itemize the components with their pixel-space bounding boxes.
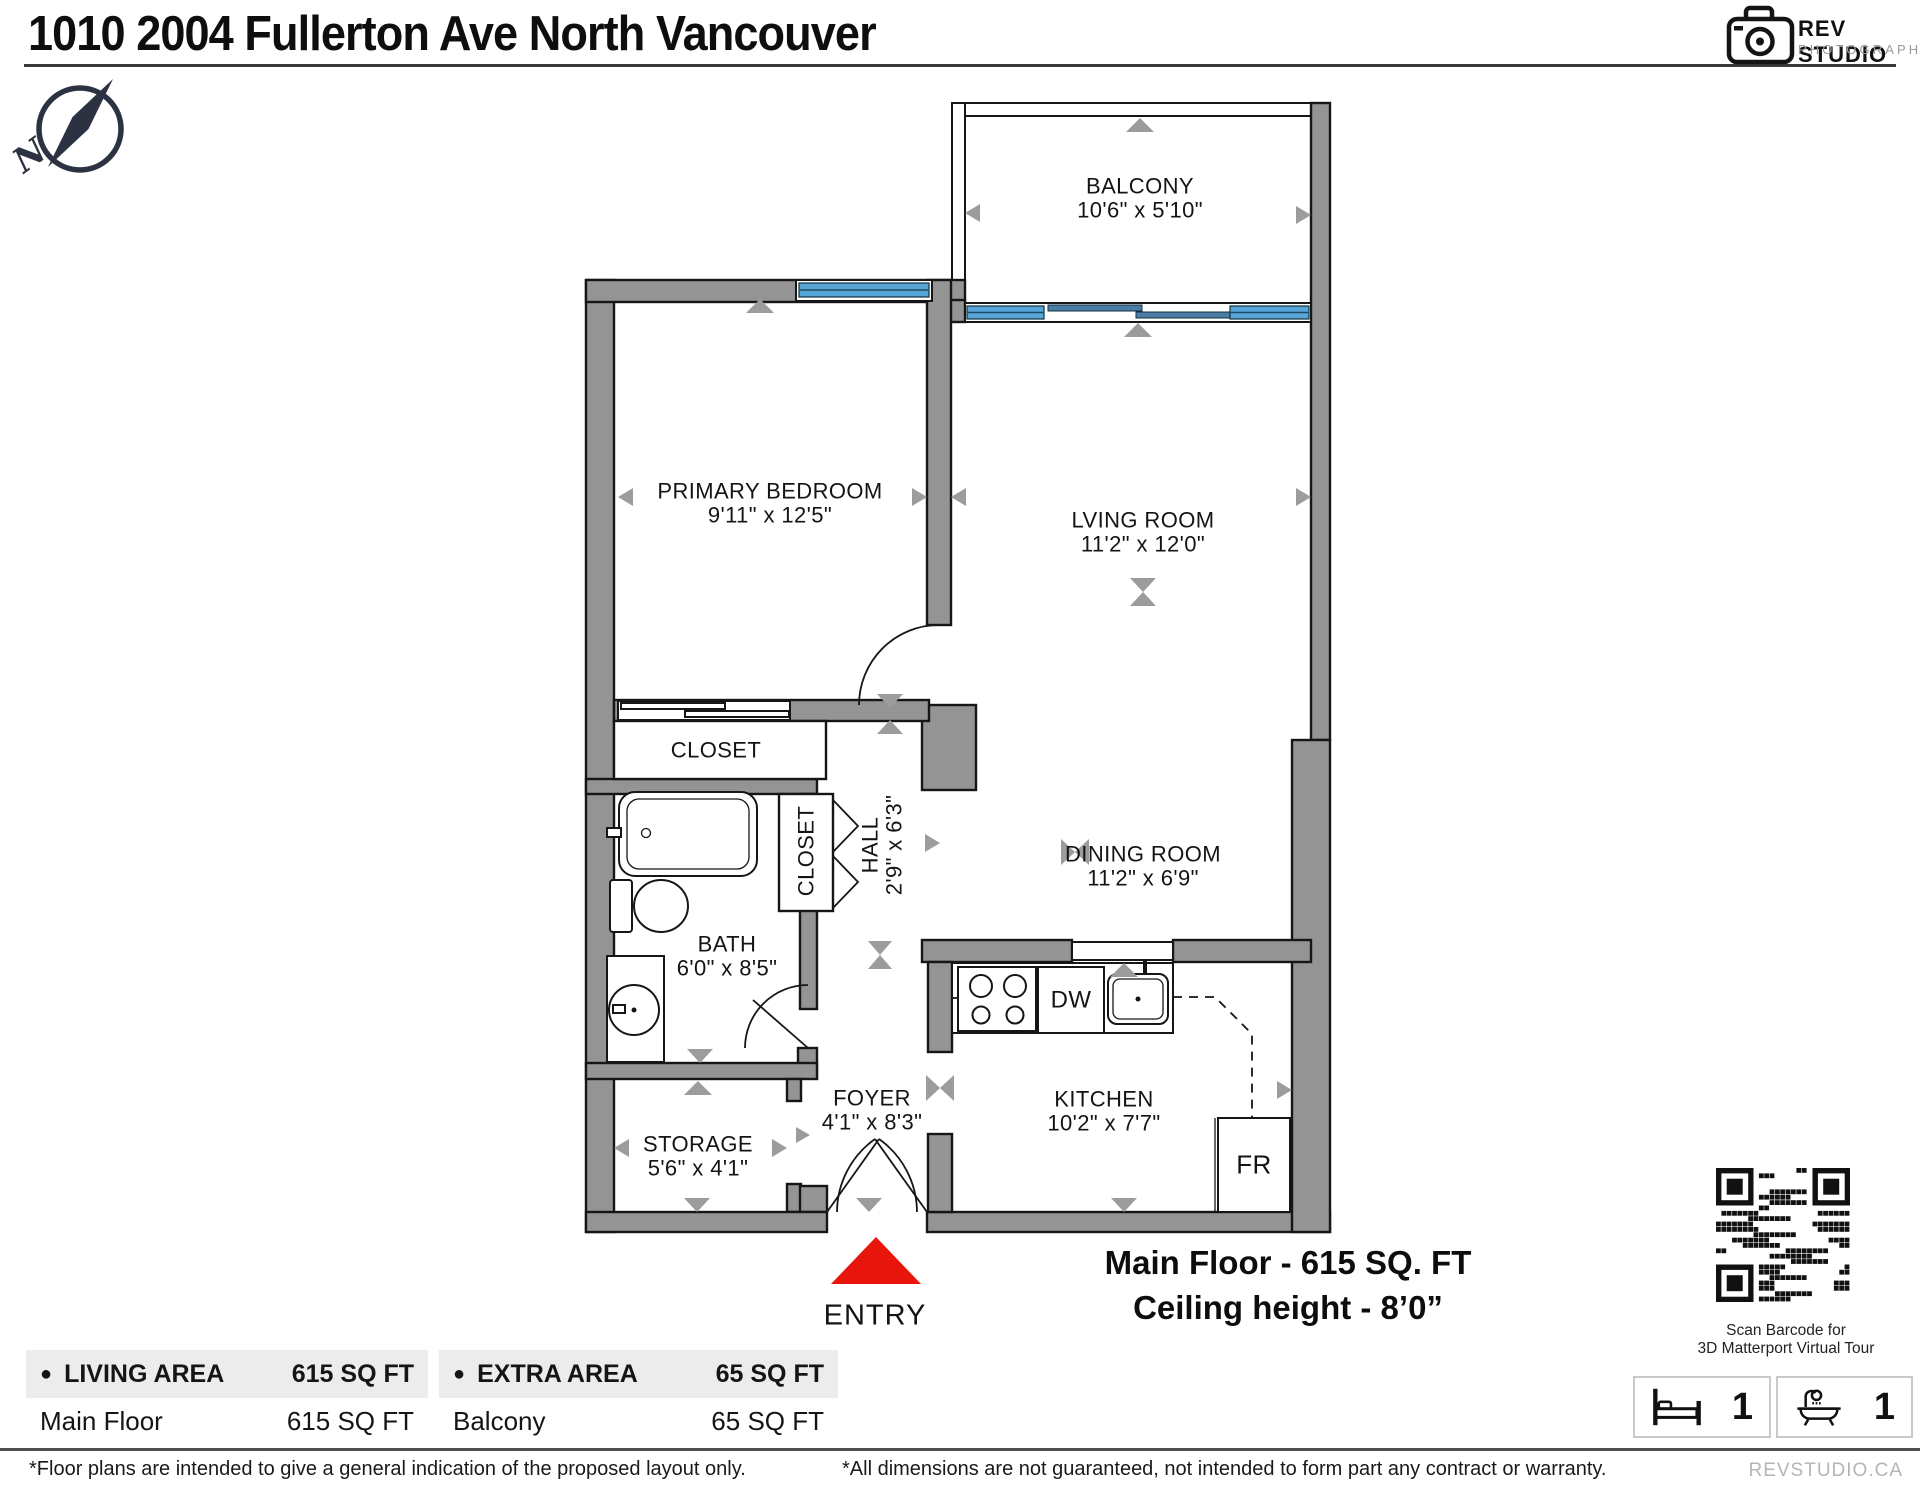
entry-arrow (831, 1237, 921, 1284)
compass-icon (39, 79, 121, 170)
room-dims: 11'2" x 6'9" (1065, 866, 1221, 890)
room-label-bedroom-closet: CLOSET (671, 738, 761, 762)
closet-sliding-door (618, 701, 790, 720)
bath-door (745, 985, 808, 1048)
room-label-hall-closet: CLOSET (794, 806, 818, 896)
bathroom-count: 1 (1874, 1386, 1895, 1429)
fridge-label: FR (1236, 1153, 1271, 1177)
bullet-icon: ● (40, 1363, 52, 1386)
room-dims: 6'0" x 8'5" (677, 956, 778, 980)
bifold-doors (833, 800, 858, 908)
room-name: PRIMARY BEDROOM (657, 480, 882, 504)
bathtub (607, 792, 757, 876)
room-label-living-room: LVING ROOM 11'2" x 12'0" (1072, 509, 1215, 556)
washer (607, 956, 664, 1062)
room-dims: 10'2" x 7'7" (1047, 1111, 1160, 1135)
floorplan-page: 1010 2004 Fullerton Ave North Vancouver … (0, 0, 1920, 1486)
room-dims: 9'11" x 12'5" (657, 503, 882, 527)
entry-label: ENTRY (824, 1304, 927, 1328)
camera-icon (1729, 8, 1792, 62)
bed-icon (1651, 1387, 1703, 1427)
floor-area-line: Main Floor - 615 SQ. FT (1063, 1240, 1513, 1285)
legend-living-title: LIVING AREA (64, 1360, 224, 1389)
legend-living-row-value: 615 SQ FT (287, 1406, 414, 1437)
room-label-foyer: FOYER 4'1" x 8'3" (822, 1087, 923, 1134)
room-dims: 4'1" x 8'3" (822, 1110, 923, 1134)
sliding-door (1048, 305, 1142, 311)
legend-extra-title: EXTRA AREA (477, 1360, 638, 1389)
room-name: CLOSET (671, 738, 761, 762)
legend-extra-row-value: 65 SQ FT (711, 1406, 824, 1437)
legend-extra-total: 65 SQ FT (716, 1360, 824, 1389)
room-dims: 11'2" x 12'0" (1072, 532, 1215, 556)
stove (958, 967, 1036, 1031)
room-label-bath: BATH 6'0" x 8'5" (677, 933, 778, 980)
room-label-dining-room: DINING ROOM 11'2" x 6'9" (1065, 843, 1221, 890)
legend-living-total: 615 SQ FT (292, 1360, 414, 1389)
room-name: CLOSET (794, 806, 818, 896)
room-label-storage: STORAGE 5'6" x 4'1" (643, 1133, 753, 1180)
legend-living-row-label: Main Floor (40, 1406, 163, 1437)
toilet (610, 880, 688, 932)
upper-cabinets-dashed (1173, 997, 1252, 1118)
brand-watermark: REVSTUDIO.CA (1748, 1460, 1903, 1482)
room-label-kitchen: KITCHEN 10'2" x 7'7" (1047, 1088, 1160, 1135)
legend-living-header: ● LIVING AREA 615 SQ FT (26, 1350, 428, 1398)
qr-code (1716, 1168, 1850, 1302)
disclaimer-left: *Floor plans are intended to give a gene… (29, 1458, 746, 1481)
room-name: HALL (859, 795, 883, 896)
bath-icon (1794, 1385, 1844, 1429)
room-dims: 2'9" x 6'3" (882, 795, 906, 896)
qr-caption-line2: 3D Matterport Virtual Tour (1646, 1340, 1920, 1358)
legend-extra-header: ● EXTRA AREA 65 SQ FT (439, 1350, 838, 1398)
legend-extra-row: Balcony 65 SQ FT (439, 1398, 838, 1444)
legend-extra-row-label: Balcony (453, 1406, 546, 1437)
bedroom-count: 1 (1732, 1386, 1753, 1429)
qr-caption: Scan Barcode for 3D Matterport Virtual T… (1646, 1322, 1920, 1358)
room-name: BALCONY (1077, 175, 1203, 199)
room-name: DINING ROOM (1065, 843, 1221, 867)
qr-caption-line1: Scan Barcode for (1646, 1322, 1920, 1340)
room-dims: 10'6" x 5'10" (1077, 198, 1203, 222)
bathroom-count-badge: 1 (1776, 1376, 1913, 1438)
bedroom-door (859, 625, 939, 705)
ceiling-height-line: Ceiling height - 8’0” (1063, 1285, 1513, 1330)
room-name: KITCHEN (1047, 1088, 1160, 1112)
bullet-icon: ● (453, 1363, 465, 1386)
floor-plan-drawing (0, 0, 1920, 1486)
floor-summary: Main Floor - 615 SQ. FT Ceiling height -… (1063, 1240, 1513, 1330)
disclaimer-right: *All dimensions are not guaranteed, not … (842, 1458, 1607, 1481)
legend-living-row: Main Floor 615 SQ FT (26, 1398, 428, 1444)
room-label-primary-bedroom: PRIMARY BEDROOM 9'11" x 12'5" (657, 480, 882, 527)
room-name: LVING ROOM (1072, 509, 1215, 533)
dishwasher-label: DW (1051, 988, 1092, 1012)
room-label-hall: HALL 2'9" x 6'3" (859, 795, 906, 896)
bedroom-count-badge: 1 (1633, 1376, 1771, 1438)
footer-divider (0, 1448, 1920, 1451)
kitchen-passthrough (1072, 942, 1173, 960)
room-label-balcony: BALCONY 10'6" x 5'10" (1077, 175, 1203, 222)
room-name: STORAGE (643, 1133, 753, 1157)
room-dims: 5'6" x 4'1" (643, 1156, 753, 1180)
room-name: FOYER (822, 1087, 923, 1111)
room-name: BATH (677, 933, 778, 957)
